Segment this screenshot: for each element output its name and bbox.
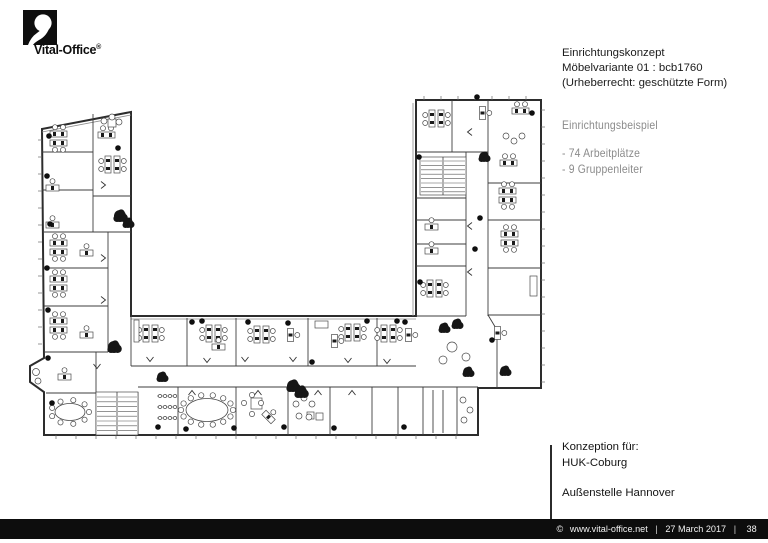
footer-divider-2: | [734, 524, 736, 535]
title-line-variant: Möbelvariante 01 : bcb1760 [562, 61, 727, 76]
footer-divider-1: | [656, 524, 658, 535]
footer-text: © www.vital-office.net | 27 March 2017 |… [557, 524, 757, 535]
client-block-separator-line [550, 445, 552, 519]
info-heading: Einrichtungsbeispiel [562, 118, 658, 132]
slide-page: Vital-Office® Einrichtungskonzept Möbelv… [0, 0, 768, 543]
vital-office-logo-icon [23, 10, 57, 45]
title-block: Einrichtungskonzept Möbelvariante 01 : b… [562, 46, 727, 92]
footer-date: 27 March 2017 [666, 524, 727, 535]
title-line-concept: Einrichtungskonzept [562, 46, 727, 61]
logo-brand-text: Vital-Office [34, 43, 96, 57]
client-name: HUK-Coburg [562, 456, 639, 472]
info-item-groupleaders: - 9 Gruppenleiter [562, 162, 643, 178]
vital-office-logo: Vital-Office® [23, 10, 113, 56]
footer-page-number: 38 [747, 524, 757, 535]
logo-wordmark: Vital-Office® [34, 43, 101, 57]
registered-trademark-symbol: ® [96, 44, 101, 51]
info-items: - 74 Arbeitplätze - 9 Gruppenleiter [562, 146, 643, 177]
info-item-workstations: - 74 Arbeitplätze [562, 146, 643, 162]
footer-bar: © www.vital-office.net | 27 March 2017 |… [0, 519, 768, 539]
client-block: Konzeption für: HUK-Coburg [562, 440, 639, 472]
client-intro: Konzeption für: [562, 440, 639, 456]
title-line-copyright: (Urheberrecht: geschützte Form) [562, 76, 727, 91]
copyright-symbol: © [557, 524, 564, 535]
client-location: Außenstelle Hannover [562, 487, 675, 499]
footer-website[interactable]: www.vital-office.net [570, 524, 648, 535]
